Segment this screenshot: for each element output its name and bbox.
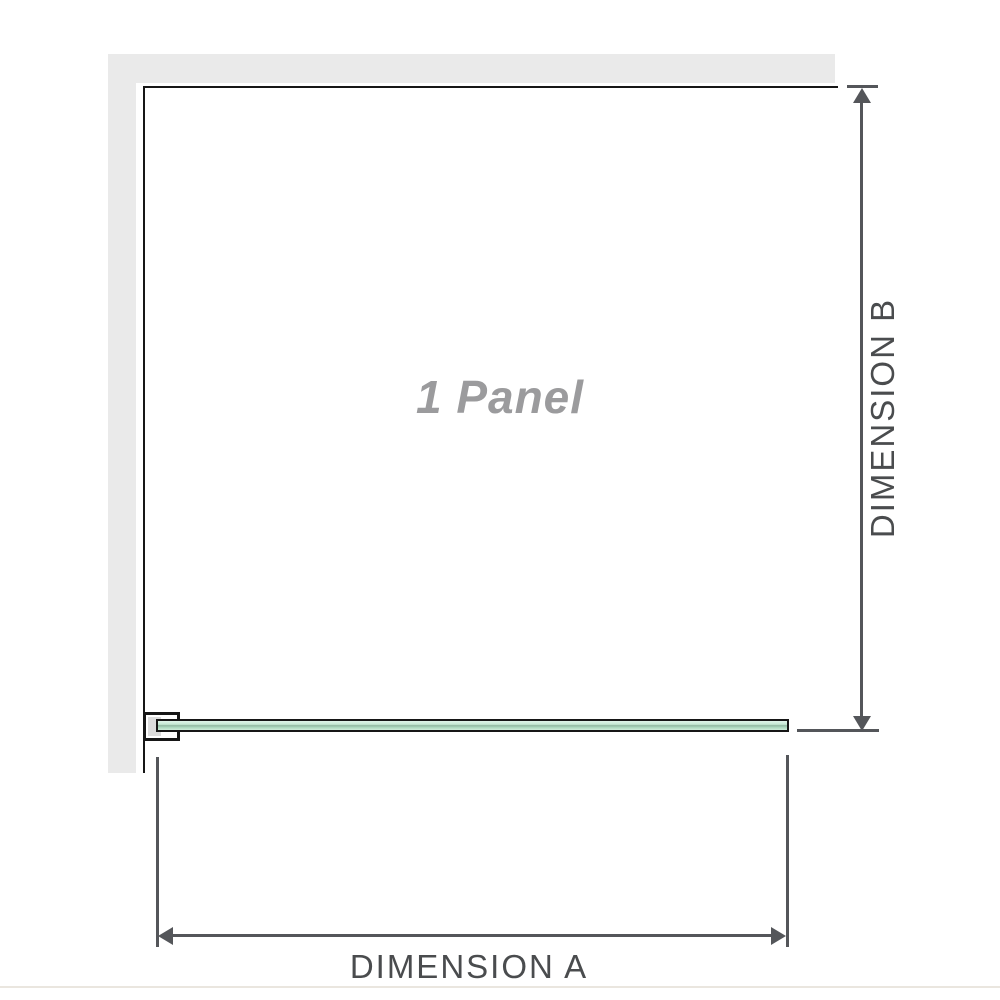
bottom-baseline <box>0 986 1000 988</box>
wall-top-bar <box>108 54 835 83</box>
glass-panel <box>156 719 789 732</box>
arrow-right-icon <box>771 927 786 945</box>
arrow-up-icon <box>853 88 871 103</box>
panel-dimension-diagram: 1 Panel DIMENSION B DIMENSION A <box>0 0 1000 1000</box>
dimension-b-tick-top <box>847 85 878 88</box>
dimension-b-line <box>860 95 863 721</box>
dimension-a-extension-left <box>156 757 159 947</box>
panel-count-label: 1 Panel <box>350 370 650 424</box>
dimension-a-extension-right <box>786 755 789 947</box>
arrow-left-icon <box>158 927 173 945</box>
panel-outline-left-line <box>143 86 145 773</box>
dimension-b-label: DIMENSION B <box>866 268 900 568</box>
panel-outline-top-line <box>143 86 838 88</box>
wall-left-bar <box>108 54 136 773</box>
dimension-b-tick-bottom <box>797 729 879 732</box>
dimension-a-label: DIMENSION A <box>269 948 669 986</box>
dimension-a-line <box>165 934 780 937</box>
